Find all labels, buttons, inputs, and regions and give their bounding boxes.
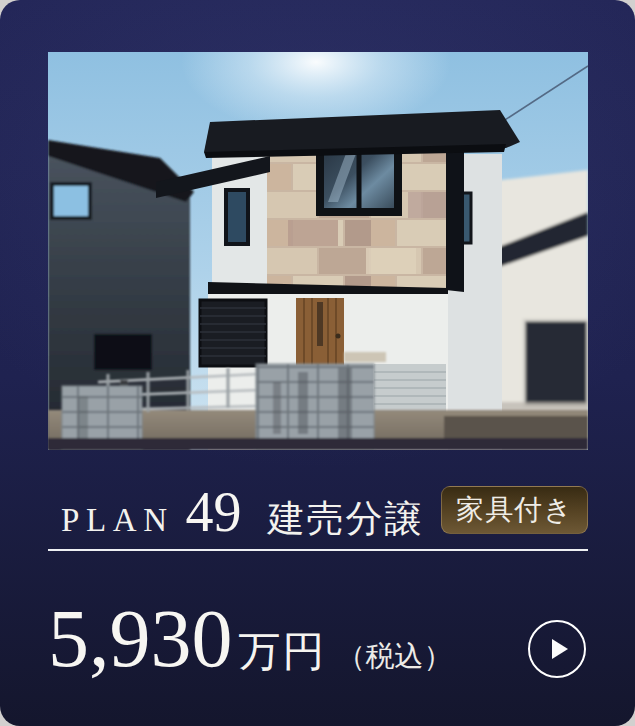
price-text: 5,930万円（税込） [48, 598, 453, 680]
price-unit: 万円 [239, 629, 327, 675]
detail-arrow-button[interactable] [528, 620, 586, 678]
property-plan-card[interactable]: PLAN 49 建売分譲 家具付き 5,930万円（税込） [0, 0, 635, 726]
house-photo-illustration [48, 52, 588, 450]
plan-category: 建売分譲 [268, 494, 424, 544]
price-amount: 5,930 [48, 593, 233, 684]
divider-line [48, 549, 588, 551]
plan-title-row: PLAN 49 建売分譲 家具付き [48, 480, 588, 540]
price-tax-note: （税込） [337, 640, 453, 672]
plan-label: PLAN [48, 502, 174, 539]
plan-number: 49 [186, 480, 242, 544]
property-photo [48, 52, 588, 450]
play-arrow-icon [552, 639, 568, 659]
furnished-badge: 家具付き [441, 486, 588, 534]
